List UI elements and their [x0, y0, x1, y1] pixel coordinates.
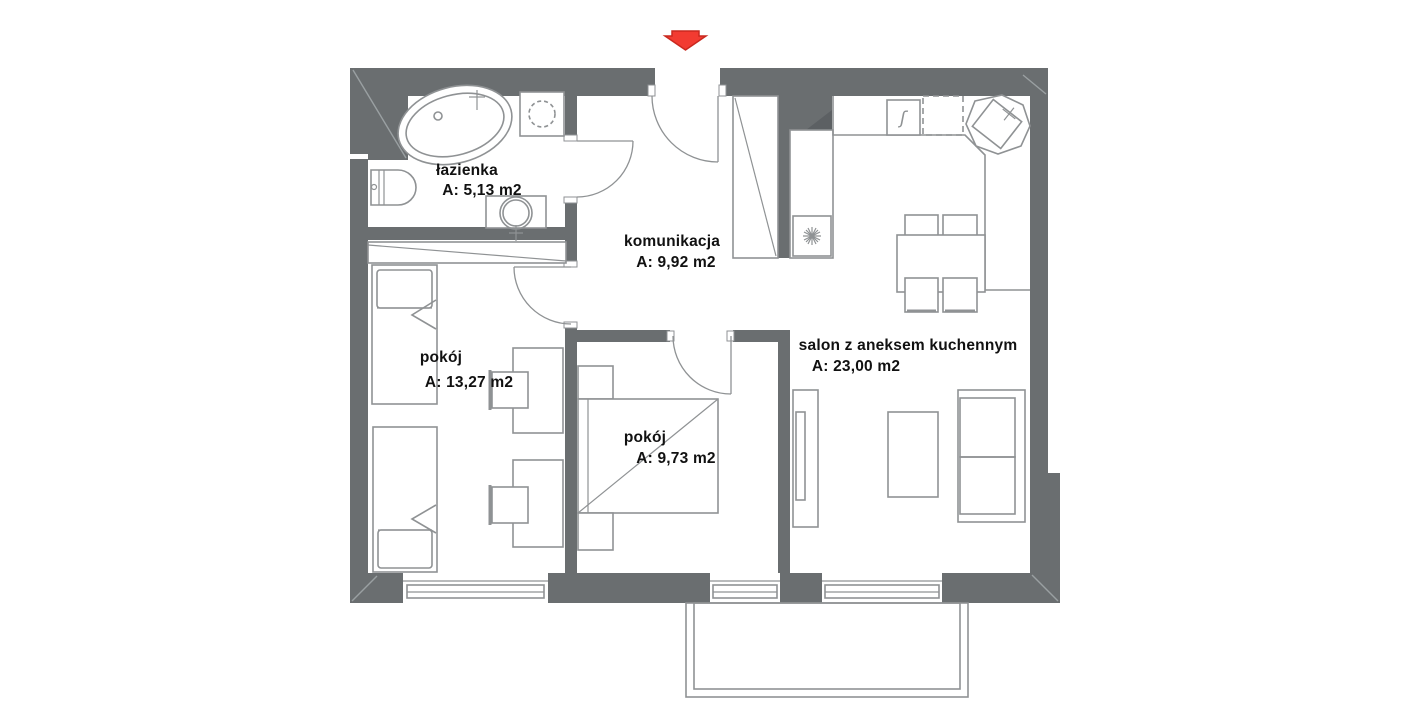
label-komunikacja: komunikacja: [624, 233, 720, 250]
room-small-door: [673, 336, 731, 394]
window-room-small: [710, 573, 780, 603]
single-bed-2: [373, 427, 437, 572]
tv-cabinet: [793, 390, 818, 527]
nightstand-1: [578, 366, 613, 399]
wall-seam: [350, 154, 368, 159]
area-salon: A: 23,00 m2: [812, 358, 900, 375]
room-large-wardrobe: [368, 242, 566, 263]
room-large-door: [514, 267, 571, 324]
wall-bath-bottom: [352, 227, 568, 240]
washing-machine: [520, 92, 564, 136]
bathroom-door: [577, 141, 633, 197]
label-lazienka: łazienka: [436, 162, 498, 179]
dishwasher: [923, 96, 963, 135]
floor-plan-drawing: ʃ łazienka A: 5,13 m2: [0, 0, 1410, 728]
wall-room-salon: [778, 330, 790, 573]
door-jambs: [564, 85, 734, 341]
area-pokoj-maly: A: 9,73 m2: [636, 450, 716, 467]
wall-bath-1: [565, 96, 577, 141]
gas-appliance: ʃ: [887, 100, 920, 135]
sofa: [958, 390, 1025, 522]
entrance-door: [652, 96, 718, 162]
wall-rooms-divider: [565, 322, 577, 573]
wall-bottom-4: [942, 573, 1060, 603]
window-room-large: [403, 573, 548, 603]
label-pokoj-duzy: pokój: [420, 349, 462, 366]
corner-sink: [966, 95, 1030, 154]
label-salon: salon z aneksem kuchennym: [799, 337, 1018, 354]
wall-hall-south-left: [565, 330, 670, 342]
wall-bottom-3: [780, 573, 822, 603]
floor-plan: ʃ łazienka A: 5,13 m2: [0, 0, 1410, 728]
entrance-arrow-icon: [665, 31, 706, 50]
toilet: [371, 170, 416, 205]
coffee-table: [888, 412, 938, 497]
chair-2: [490, 485, 528, 525]
dining-chair-3: [905, 278, 938, 312]
hall-wardrobe: [733, 96, 778, 258]
wall-bottom-2: [548, 573, 710, 603]
dining-table: [897, 215, 985, 312]
hob: [793, 216, 831, 256]
dining-chair-4: [943, 278, 977, 312]
wall-top-left: [350, 68, 655, 96]
area-pokoj-duzy: A: 13,27 m2: [425, 374, 513, 391]
wall-bottom-1: [350, 573, 403, 603]
nightstand-2: [578, 513, 613, 550]
label-pokoj-maly: pokój: [624, 429, 666, 446]
window-salon: [822, 573, 942, 603]
area-komunikacja: A: 9,92 m2: [636, 254, 716, 271]
wall-right-upper: [1030, 96, 1048, 473]
wall-left: [350, 96, 368, 573]
wall-top-right: [720, 68, 1048, 96]
balcony: [686, 603, 968, 697]
area-lazienka: A: 5,13 m2: [442, 182, 522, 199]
